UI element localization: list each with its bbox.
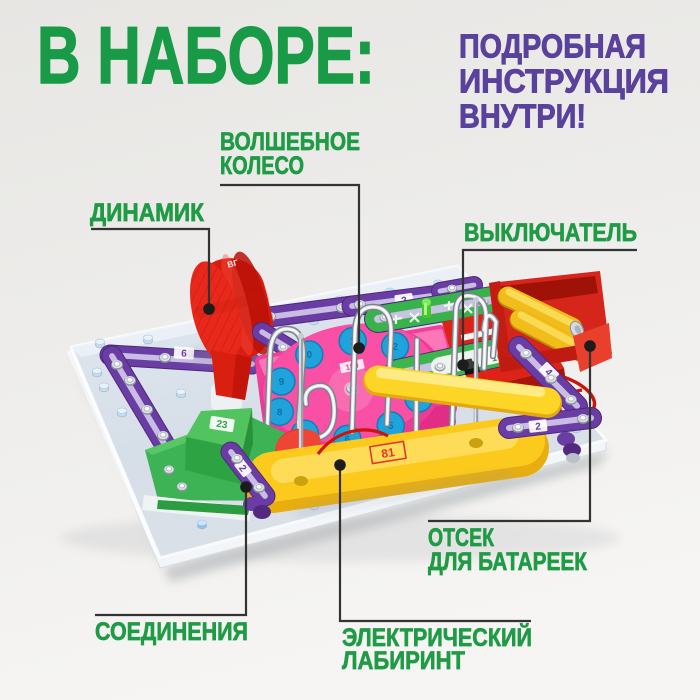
svg-text:ДЛЯ БАТАРЕЕК: ДЛЯ БАТАРЕЕК [428, 548, 588, 576]
svg-text:В НАБОРЕ:: В НАБОРЕ: [37, 11, 375, 101]
svg-text:ЛАБИРИНТ: ЛАБИРИНТ [342, 647, 465, 675]
svg-text:ВНУТРИ!: ВНУТРИ! [459, 98, 586, 135]
svg-text:СОЕДИНЕНИЯ: СОЕДИНЕНИЯ [95, 618, 248, 646]
svg-text:ПОДРОБНАЯ: ПОДРОБНАЯ [459, 28, 646, 65]
svg-text:ИНСТРУКЦИЯ: ИНСТРУКЦИЯ [459, 63, 669, 100]
svg-text:КОЛЕСО: КОЛЕСО [220, 152, 304, 180]
svg-text:9: 9 [279, 377, 285, 388]
svg-text:ВЫКЛЮЧАТЕЛЬ: ВЫКЛЮЧАТЕЛЬ [464, 219, 637, 247]
svg-text:ДИНАМИК: ДИНАМИК [90, 199, 205, 227]
svg-text:23: 23 [215, 419, 228, 432]
svg-text:8: 8 [277, 407, 283, 418]
svg-text:81: 81 [380, 445, 396, 461]
svg-text:0: 0 [307, 350, 313, 361]
